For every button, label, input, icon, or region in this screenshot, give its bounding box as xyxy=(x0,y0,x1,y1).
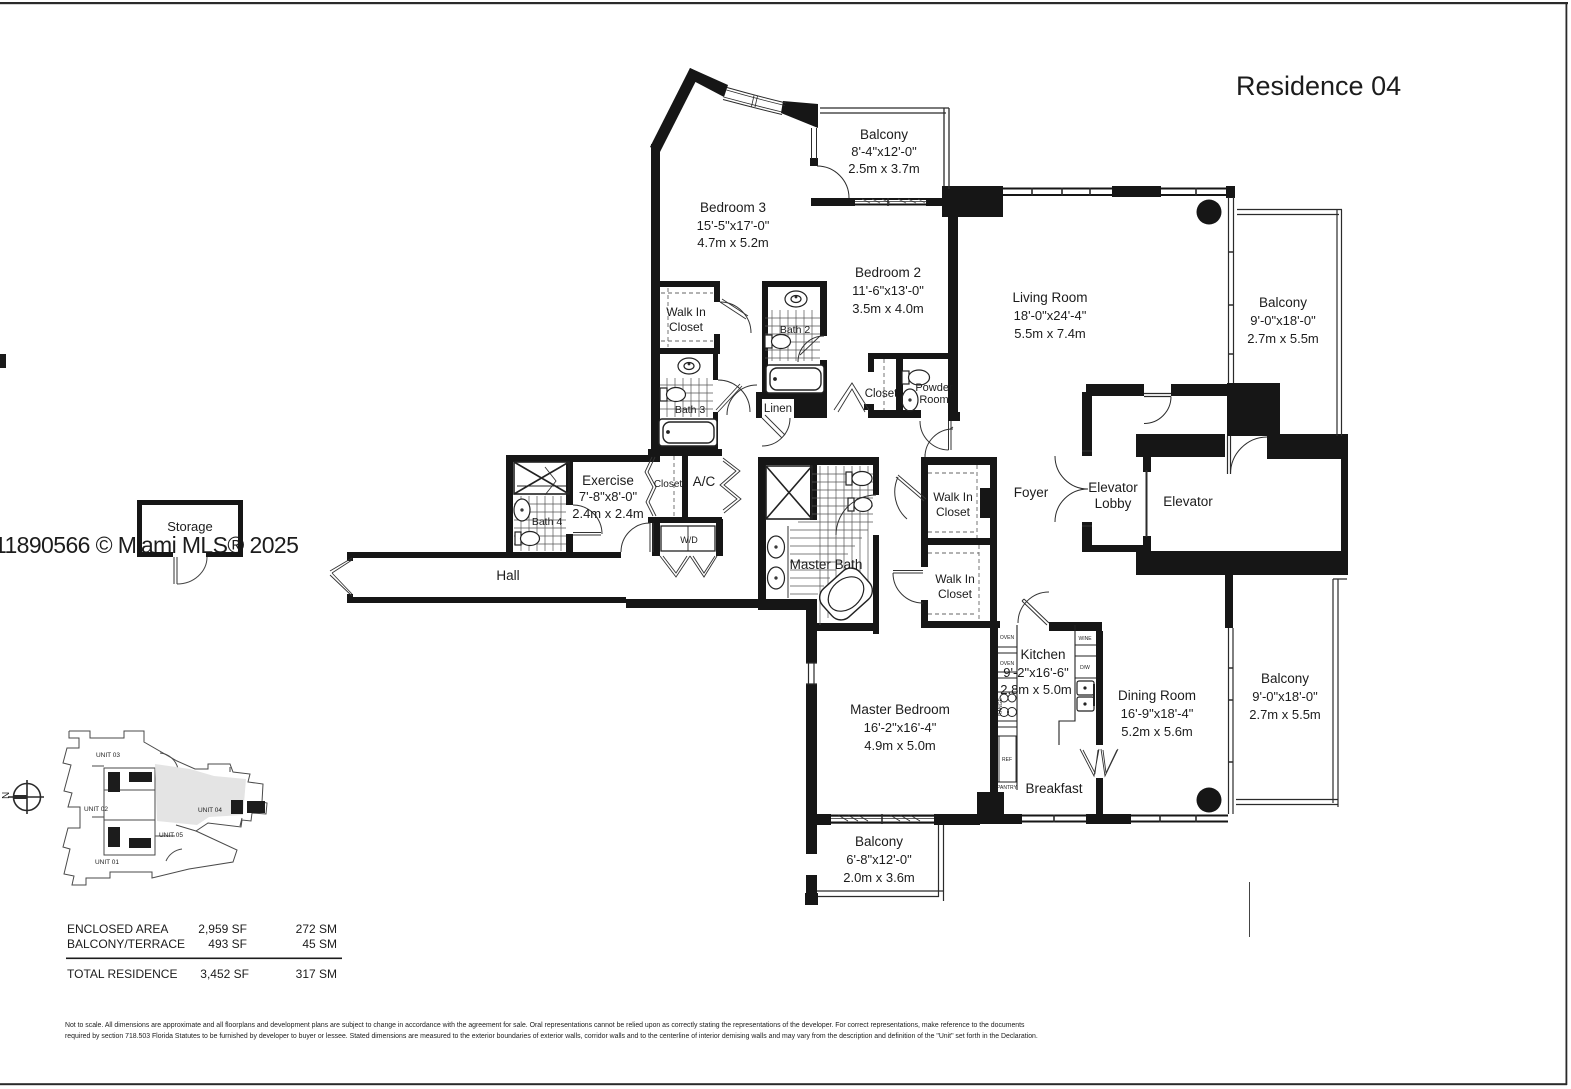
svg-text:Closet: Closet xyxy=(936,505,971,519)
svg-text:UNIT 02: UNIT 02 xyxy=(84,806,108,813)
svg-text:Walk In: Walk In xyxy=(935,572,975,586)
svg-text:16'-2"x16'-4": 16'-2"x16'-4" xyxy=(864,720,937,735)
svg-text:2.7m x 5.5m: 2.7m x 5.5m xyxy=(1249,707,1321,722)
svg-text:Bedroom 3: Bedroom 3 xyxy=(700,200,766,215)
svg-text:Residence 04: Residence 04 xyxy=(1236,71,1401,101)
svg-text:W/D: W/D xyxy=(680,535,698,545)
svg-text:9'-0"x18'-0": 9'-0"x18'-0" xyxy=(1250,313,1316,328)
svg-text:317 SM: 317 SM xyxy=(296,967,337,981)
svg-text:8'-4"x12'-0": 8'-4"x12'-0" xyxy=(851,144,917,159)
svg-text:Closet: Closet xyxy=(938,587,973,601)
svg-text:11'-6"x13'-0": 11'-6"x13'-0" xyxy=(852,283,924,298)
svg-text:Closet: Closet xyxy=(654,479,683,490)
svg-text:4.7m x 5.2m: 4.7m x 5.2m xyxy=(697,235,769,250)
svg-text:Elevator: Elevator xyxy=(1088,480,1138,495)
svg-text:RANGE: RANGE xyxy=(998,697,1004,715)
svg-text:2,959 SF: 2,959 SF xyxy=(198,922,247,936)
svg-text:Balcony: Balcony xyxy=(860,127,908,142)
svg-text:4.9m x 5.0m: 4.9m x 5.0m xyxy=(864,738,936,753)
svg-text:Not to scale. All dimensions: Not to scale. All dimensions are approxi… xyxy=(65,1022,1025,1029)
svg-text:WINE: WINE xyxy=(1078,636,1092,642)
svg-text:2.7m x 5.5m: 2.7m x 5.5m xyxy=(1247,331,1319,346)
svg-text:9'-0"x18'-0": 9'-0"x18'-0" xyxy=(1252,689,1318,704)
svg-text:2.5m x 3.7m: 2.5m x 3.7m xyxy=(848,161,920,176)
svg-text:Powder: Powder xyxy=(915,382,953,394)
svg-text:UNIT 05: UNIT 05 xyxy=(159,832,183,839)
svg-text:2.4m x 2.4m: 2.4m x 2.4m xyxy=(572,506,644,521)
svg-text:Bath 2: Bath 2 xyxy=(780,324,811,336)
svg-text:3.5m x 4.0m: 3.5m x 4.0m xyxy=(852,301,924,316)
svg-text:2.8m x 5.0m: 2.8m x 5.0m xyxy=(1000,682,1072,697)
svg-text:required by section 718.503 Fl: required by section 718.503 Florida Stat… xyxy=(65,1033,1038,1040)
svg-text:5.2m x 5.6m: 5.2m x 5.6m xyxy=(1121,724,1193,739)
svg-text:7'-8"x8'-0": 7'-8"x8'-0" xyxy=(579,489,638,504)
svg-text:Storage: Storage xyxy=(167,519,213,534)
svg-text:3,452 SF: 3,452 SF xyxy=(200,967,249,981)
svg-text:D/W: D/W xyxy=(1080,665,1090,671)
svg-text:UNIT 03: UNIT 03 xyxy=(96,752,120,759)
svg-text:16'-9"x18'-4": 16'-9"x18'-4" xyxy=(1121,706,1194,721)
svg-text:Walk In: Walk In xyxy=(666,305,706,319)
svg-text:Linen: Linen xyxy=(764,403,792,415)
svg-text:Lobby: Lobby xyxy=(1095,496,1132,511)
svg-text:5.5m x 7.4m: 5.5m x 7.4m xyxy=(1014,326,1086,341)
svg-text:Living Room: Living Room xyxy=(1012,290,1087,305)
svg-text:45 SM: 45 SM xyxy=(302,937,337,951)
svg-text:493 SF: 493 SF xyxy=(208,937,247,951)
svg-text:Foyer: Foyer xyxy=(1014,485,1049,500)
svg-text:Hall: Hall xyxy=(496,568,519,583)
svg-text:Bedroom 2: Bedroom 2 xyxy=(855,265,921,280)
svg-text:BALCONY/TERRACE: BALCONY/TERRACE xyxy=(67,937,185,951)
svg-text:N: N xyxy=(1,792,12,799)
svg-text:6'-8"x12'-0": 6'-8"x12'-0" xyxy=(846,852,912,867)
svg-text:Closet: Closet xyxy=(669,320,704,334)
svg-text:UNIT 01: UNIT 01 xyxy=(95,859,119,866)
svg-text:TOTAL RESIDENCE: TOTAL RESIDENCE xyxy=(67,967,177,981)
svg-text:Balcony: Balcony xyxy=(1259,295,1307,310)
svg-text:UNIT 04: UNIT 04 xyxy=(198,807,222,814)
svg-text:272 SM: 272 SM xyxy=(296,922,337,936)
svg-text:Walk In: Walk In xyxy=(933,490,973,504)
svg-text:Balcony: Balcony xyxy=(855,834,903,849)
svg-text:Room: Room xyxy=(919,394,948,406)
svg-text:9'-2"x16'-6": 9'-2"x16'-6" xyxy=(1003,665,1069,680)
svg-text:Elevator: Elevator xyxy=(1163,494,1213,509)
svg-text:2.0m x 3.6m: 2.0m x 3.6m xyxy=(843,870,915,885)
svg-text:15'-5"x17'-0": 15'-5"x17'-0" xyxy=(697,218,770,233)
svg-text:Balcony: Balcony xyxy=(1261,671,1309,686)
svg-text:Closet: Closet xyxy=(865,388,898,400)
svg-text:Bath 3: Bath 3 xyxy=(675,404,706,416)
svg-text:ENCLOSED AREA: ENCLOSED AREA xyxy=(67,922,168,936)
svg-text:Kitchen: Kitchen xyxy=(1020,647,1065,662)
svg-text:Master Bedroom: Master Bedroom xyxy=(850,702,950,717)
svg-text:Bath 4: Bath 4 xyxy=(532,516,563,528)
svg-text:Breakfast: Breakfast xyxy=(1025,781,1082,796)
svg-text:A/C: A/C xyxy=(693,474,716,489)
svg-text:Exercise: Exercise xyxy=(582,473,634,488)
svg-text:OVEN: OVEN xyxy=(1000,635,1015,641)
svg-text:REF: REF xyxy=(1002,757,1012,763)
svg-text:Dining Room: Dining Room xyxy=(1118,688,1196,703)
svg-text:18'-0"x24'-4": 18'-0"x24'-4" xyxy=(1014,308,1087,323)
svg-text:PANTRY: PANTRY xyxy=(997,785,1017,791)
